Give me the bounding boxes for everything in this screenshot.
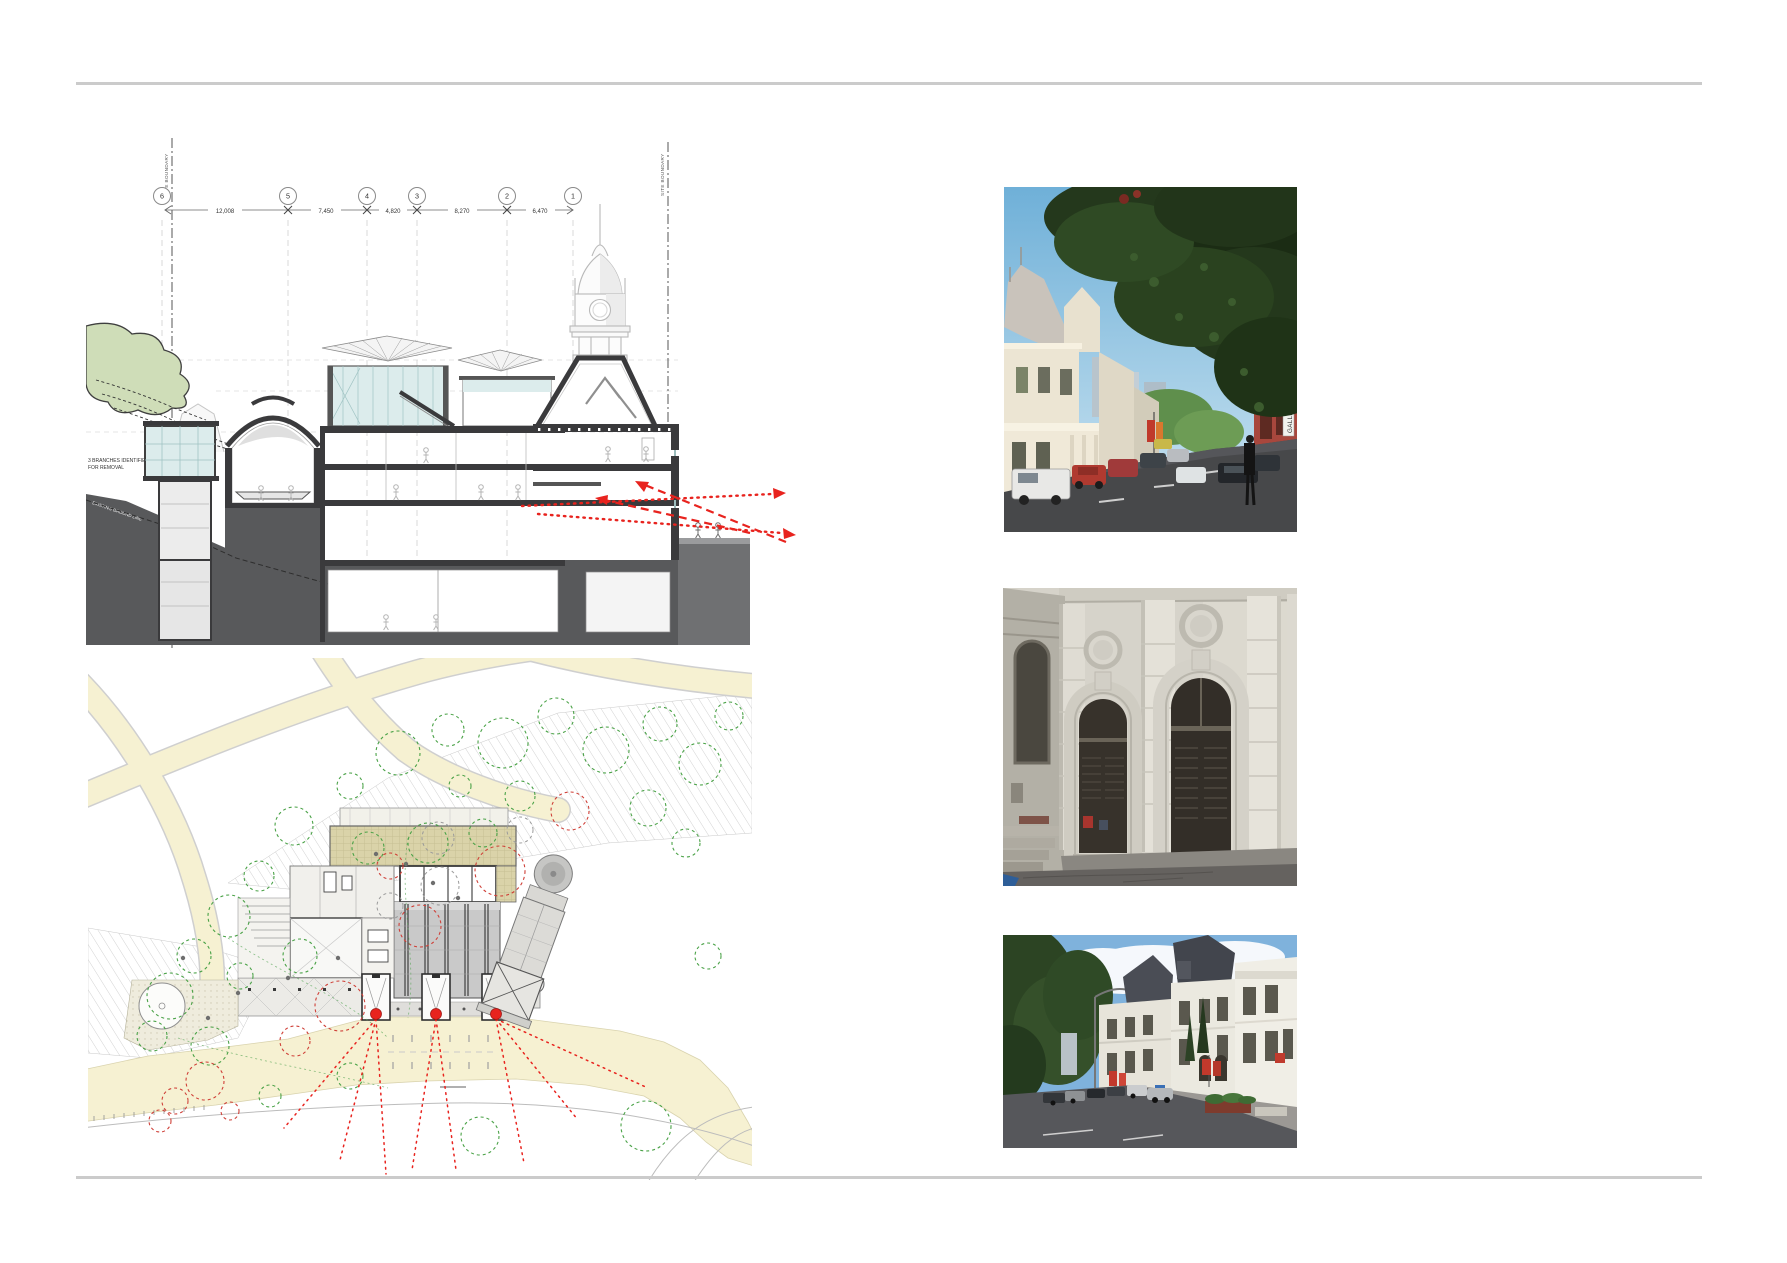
long-section-svg: SITE BOUNDARY SITE BOUNDARY 12,008 <box>86 108 798 656</box>
dim-5: 6,470 <box>532 209 548 215</box>
heritage-wing <box>533 358 679 560</box>
grid-bubble-4: 4 <box>365 192 369 201</box>
street-figures <box>695 523 720 538</box>
dim-1: 12,008 <box>216 209 235 215</box>
dim-3: 4,820 <box>385 209 401 215</box>
photo-gallery-building <box>1003 935 1297 1148</box>
photo-street-tree: GALLERY <box>1004 187 1297 532</box>
branches-note-line1: 3 BRANCHES IDENTIFIED <box>88 458 150 464</box>
photo-arched-doors-svg <box>1003 588 1297 886</box>
grid-bubble-6: 6 <box>160 192 164 201</box>
distant-tower <box>1061 1033 1077 1075</box>
vaulted-gallery <box>225 398 321 509</box>
red-airflow-arrows <box>522 481 796 542</box>
site-boundary-right: SITE BOUNDARY <box>660 142 668 426</box>
terrace-steps <box>238 898 290 978</box>
top-rule <box>76 82 1702 85</box>
site-plan-svg <box>88 658 752 1180</box>
site-plan-drawing <box>88 658 752 1180</box>
dim-4: 8,270 <box>454 209 470 215</box>
photo-arched-doors <box>1003 588 1297 886</box>
red-sign <box>1275 1053 1285 1063</box>
dimension-line: 12,008 7,450 4,820 8,270 6,470 <box>165 205 573 215</box>
grid-bubble-2: 2 <box>505 192 509 201</box>
pergola-colonnade <box>238 978 362 1016</box>
clock-tower <box>570 204 630 361</box>
grid-bubble-5: 5 <box>286 192 290 201</box>
long-section-drawing: SITE BOUNDARY SITE BOUNDARY 12,008 <box>86 108 798 656</box>
grid-bubble-1: 1 <box>571 192 575 201</box>
branches-note-line2: FOR REMOVAL <box>88 465 124 471</box>
report-page: SITE BOUNDARY SITE BOUNDARY 12,008 <box>0 0 1787 1263</box>
photo-street-tree-svg: GALLERY <box>1004 187 1297 532</box>
bottom-rule <box>76 1176 1702 1179</box>
dim-2: 7,450 <box>318 209 334 215</box>
grid-bubble-3: 3 <box>415 192 419 201</box>
photo-gallery-building-svg <box>1003 935 1297 1148</box>
kiosk-dome <box>139 983 185 1029</box>
grid-bubbles: 6 5 4 3 2 1 <box>154 188 582 205</box>
site-boundary-right-label: SITE BOUNDARY <box>660 153 665 196</box>
